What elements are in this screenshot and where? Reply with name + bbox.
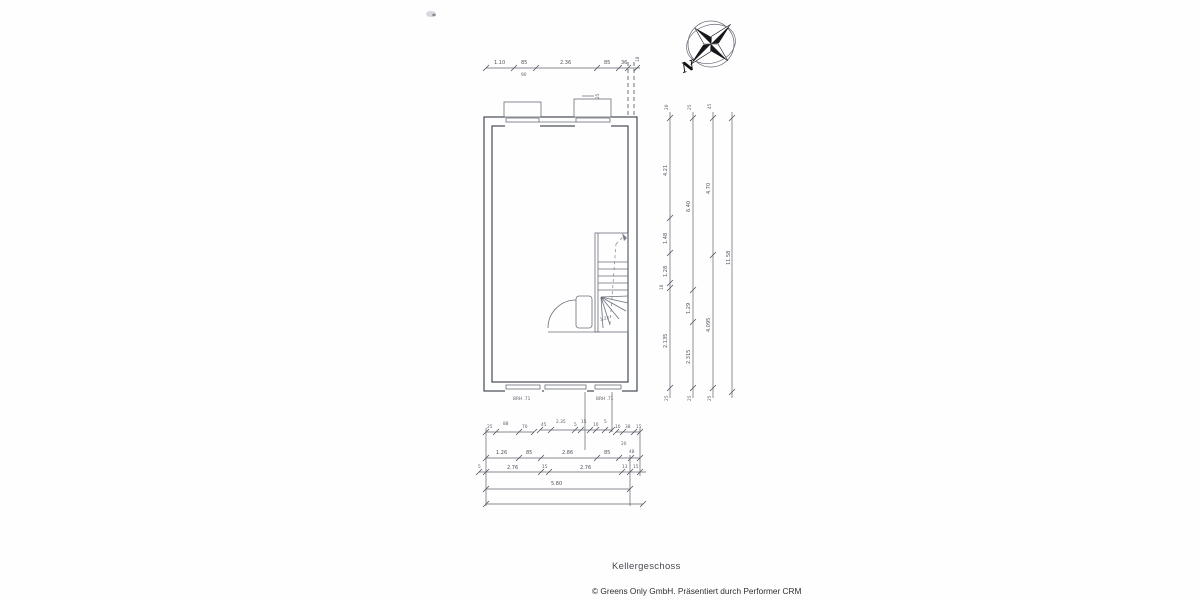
brh-label-left: BRH .71 [513, 396, 531, 402]
dim-label: 11.58 [726, 251, 732, 265]
dim-label: 15 [633, 464, 639, 470]
dimension-chain-bottom-A: 25 88 70 45 2.35 5 15 10 5 10 38 15 20 [483, 419, 643, 447]
dim-label: 6.40 [686, 201, 692, 212]
dim-label: 2.315 [686, 350, 692, 364]
dim-label: 5.80 [551, 481, 562, 487]
dim-label: 15 [581, 419, 587, 425]
door-swing-arc [548, 300, 576, 328]
dim-label: 70 [522, 424, 528, 430]
top-windows: 25 [504, 93, 611, 127]
floor-plan-page: 25 BRH .71 BRH .71 [0, 0, 1200, 600]
dim-label: 20 [664, 104, 670, 110]
dim-sublabel: 90 [521, 72, 527, 78]
dim-label: 85 [604, 450, 610, 456]
bottom-windows: BRH .71 BRH .71 [505, 383, 622, 402]
dim-label: 1.10 [494, 60, 505, 66]
dimension-chain-top: 1.10 85 2.36 85 36 90 18 [483, 56, 641, 78]
dimension-chain-right-3: 45 4.70 4.095 25 [706, 103, 716, 401]
dim-label: 15 [636, 424, 642, 430]
dim-label: 36 [621, 60, 627, 66]
dimension-chain-bottom-B: 1.26 85 2.86 85 48 [483, 449, 643, 461]
winder-treads [601, 296, 628, 328]
dim-label: 4.21 [663, 165, 669, 176]
stair-door [548, 296, 600, 332]
inner-wall [492, 126, 628, 382]
dim-sublabel: 20 [621, 441, 627, 447]
floor-plan: 25 BRH .71 BRH .71 [484, 62, 637, 450]
dim-label: 25 [487, 424, 493, 430]
dim-label: 2.76 [580, 465, 591, 471]
dim-label: 2.76 [507, 465, 518, 471]
dim-label: 85 [521, 60, 527, 66]
dimension-chain-right-1: 20 4.21 1.48 1.28 18 2.135 25 [659, 104, 673, 401]
dimension-chain-bottom-D: 5.80 [483, 481, 633, 492]
dim-label: 10 [593, 422, 599, 428]
dim-label: 38 [625, 424, 631, 430]
window-well-left [504, 102, 541, 117]
dim-label: 25 [707, 395, 713, 401]
dim-label: 13 [622, 464, 628, 470]
dim-label: 15 [542, 464, 548, 470]
compass-rose: N [679, 18, 741, 77]
dim-label: 1.28 [663, 266, 669, 277]
outer-wall [484, 117, 637, 391]
dim-label: 18 [635, 56, 641, 62]
staircase: 1.22 [548, 233, 628, 332]
dim-label: 45 [707, 103, 713, 109]
door-leaf [576, 296, 592, 328]
compass-star [687, 21, 734, 68]
floor-plan-drawing: 25 BRH .71 BRH .71 [0, 0, 1200, 600]
dim-label: 2.135 [663, 334, 669, 348]
dim-label: 45 [541, 422, 547, 428]
dim-label: 18 [659, 284, 665, 290]
dim-label: 85 [526, 450, 532, 456]
dim-label: 4.70 [706, 183, 712, 194]
dimension-chain-bottom-C: 5 2.76 15 2.76 13 15 [476, 464, 646, 475]
dim-label: 2.86 [562, 450, 573, 456]
page-title: Kellergeschoss [612, 561, 681, 572]
dim-label: 5 [574, 422, 577, 428]
dim-label: 5 [478, 464, 481, 470]
dim-label: 85 [604, 60, 610, 66]
dim-label: 1.48 [663, 233, 669, 244]
dim-label: 2.35 [556, 419, 566, 425]
brh-label-right: BRH .71 [596, 396, 614, 402]
copyright-footer: © Greens Only GmbH. Präsentiert durch Pe… [592, 586, 801, 596]
window-well-right [574, 99, 611, 117]
dim-label: 25 [687, 395, 693, 401]
dim-label: 25 [687, 104, 693, 110]
dim-label: 4.095 [706, 318, 712, 332]
dim-label: 2.36 [560, 60, 571, 66]
shaft-dim-label: 25 [595, 93, 601, 99]
dim-label: 88 [503, 421, 509, 427]
dim-label: 1.26 [496, 450, 507, 456]
dim-label: 48 [629, 449, 635, 455]
dimension-chain-right-2: 25 6.40 1.29 2.315 25 [686, 104, 696, 401]
dim-label: 1.29 [686, 303, 692, 314]
dim-label: 25 [664, 395, 670, 401]
stair-arrow-head [622, 233, 627, 241]
dim-label: 5 [604, 419, 607, 425]
dimension-chain-right-4: 11.58 [726, 112, 735, 398]
dim-label: 10 [615, 424, 621, 430]
scan-smudge [426, 11, 436, 17]
projection-lines [628, 62, 634, 116]
